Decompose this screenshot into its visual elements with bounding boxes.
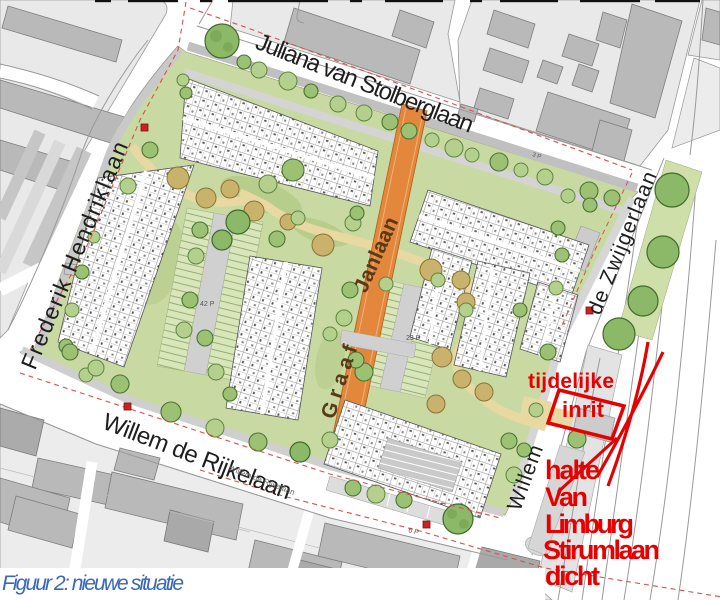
svg-text:inrit: inrit bbox=[562, 397, 605, 422]
svg-text:Figuur 2: nieuwe situatie: Figuur 2: nieuwe situatie bbox=[2, 572, 184, 595]
svg-text:23 P: 23 P bbox=[406, 335, 421, 342]
svg-text:42 P: 42 P bbox=[200, 301, 215, 308]
svg-text:tijdelijke: tijdelijke bbox=[528, 370, 614, 393]
svg-text:dicht: dicht bbox=[545, 561, 600, 591]
svg-text:halte: halte bbox=[545, 455, 600, 485]
svg-text:Van: Van bbox=[545, 482, 588, 512]
